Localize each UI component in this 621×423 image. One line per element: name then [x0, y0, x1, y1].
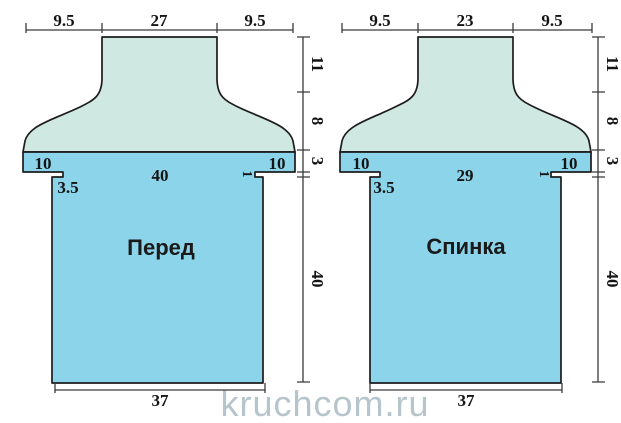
front-band-left-width: 10: [35, 154, 52, 173]
back-yoke-shape: [340, 37, 591, 152]
back-band-center-width: 29: [457, 166, 474, 185]
back-shoulder-step: 1: [536, 171, 551, 178]
front-height-neck: 11: [308, 56, 327, 72]
back-side-dimension-line: [592, 37, 605, 382]
back-neck-width: 23: [457, 11, 474, 30]
back-top-left-width: 9.5: [369, 11, 390, 30]
back-height-body: 40: [603, 271, 621, 288]
pattern-diagram: kruchcom.ru 9.5 27 9.5 10 40 10 3.5 1 Пе…: [0, 0, 621, 423]
back-piece-label: Спинка: [426, 234, 506, 259]
piece-front: 9.5 27 9.5 10 40 10 3.5 1 Перед 11 8 3 4…: [23, 11, 327, 410]
back-band-right-width: 10: [561, 154, 578, 173]
front-piece-label: Перед: [127, 235, 195, 260]
back-bottom-width: 37: [458, 391, 476, 410]
back-height-band: 3: [603, 157, 621, 166]
front-height-body: 40: [308, 271, 327, 288]
front-height-band: 3: [308, 157, 327, 166]
pattern-schematic-page: kruchcom.ru 9.5 27 9.5 10 40 10 3.5 1 Пе…: [0, 0, 621, 423]
watermark-text: kruchcom.ru: [220, 383, 429, 423]
front-shoulder-step: 1: [239, 171, 254, 178]
back-band-left-width: 10: [353, 154, 370, 173]
front-armhole-inset: 3.5: [57, 178, 78, 197]
back-armhole-inset: 3.5: [373, 178, 394, 197]
front-band-right-width: 10: [269, 154, 286, 173]
front-yoke-shape: [23, 37, 295, 152]
back-height-yoke: 8: [603, 117, 621, 126]
front-top-left-width: 9.5: [53, 11, 74, 30]
back-top-right-width: 9.5: [541, 11, 562, 30]
front-top-right-width: 9.5: [244, 11, 265, 30]
front-side-dimension-line: [297, 37, 310, 382]
front-neck-width: 27: [151, 11, 169, 30]
front-bottom-width: 37: [152, 391, 170, 410]
back-height-neck: 11: [603, 56, 621, 72]
front-band-center-width: 40: [152, 166, 169, 185]
piece-back: 9.5 23 9.5 10 29 10 3.5 1 Спинка 11 8 3 …: [340, 11, 621, 410]
front-height-yoke: 8: [308, 117, 327, 126]
